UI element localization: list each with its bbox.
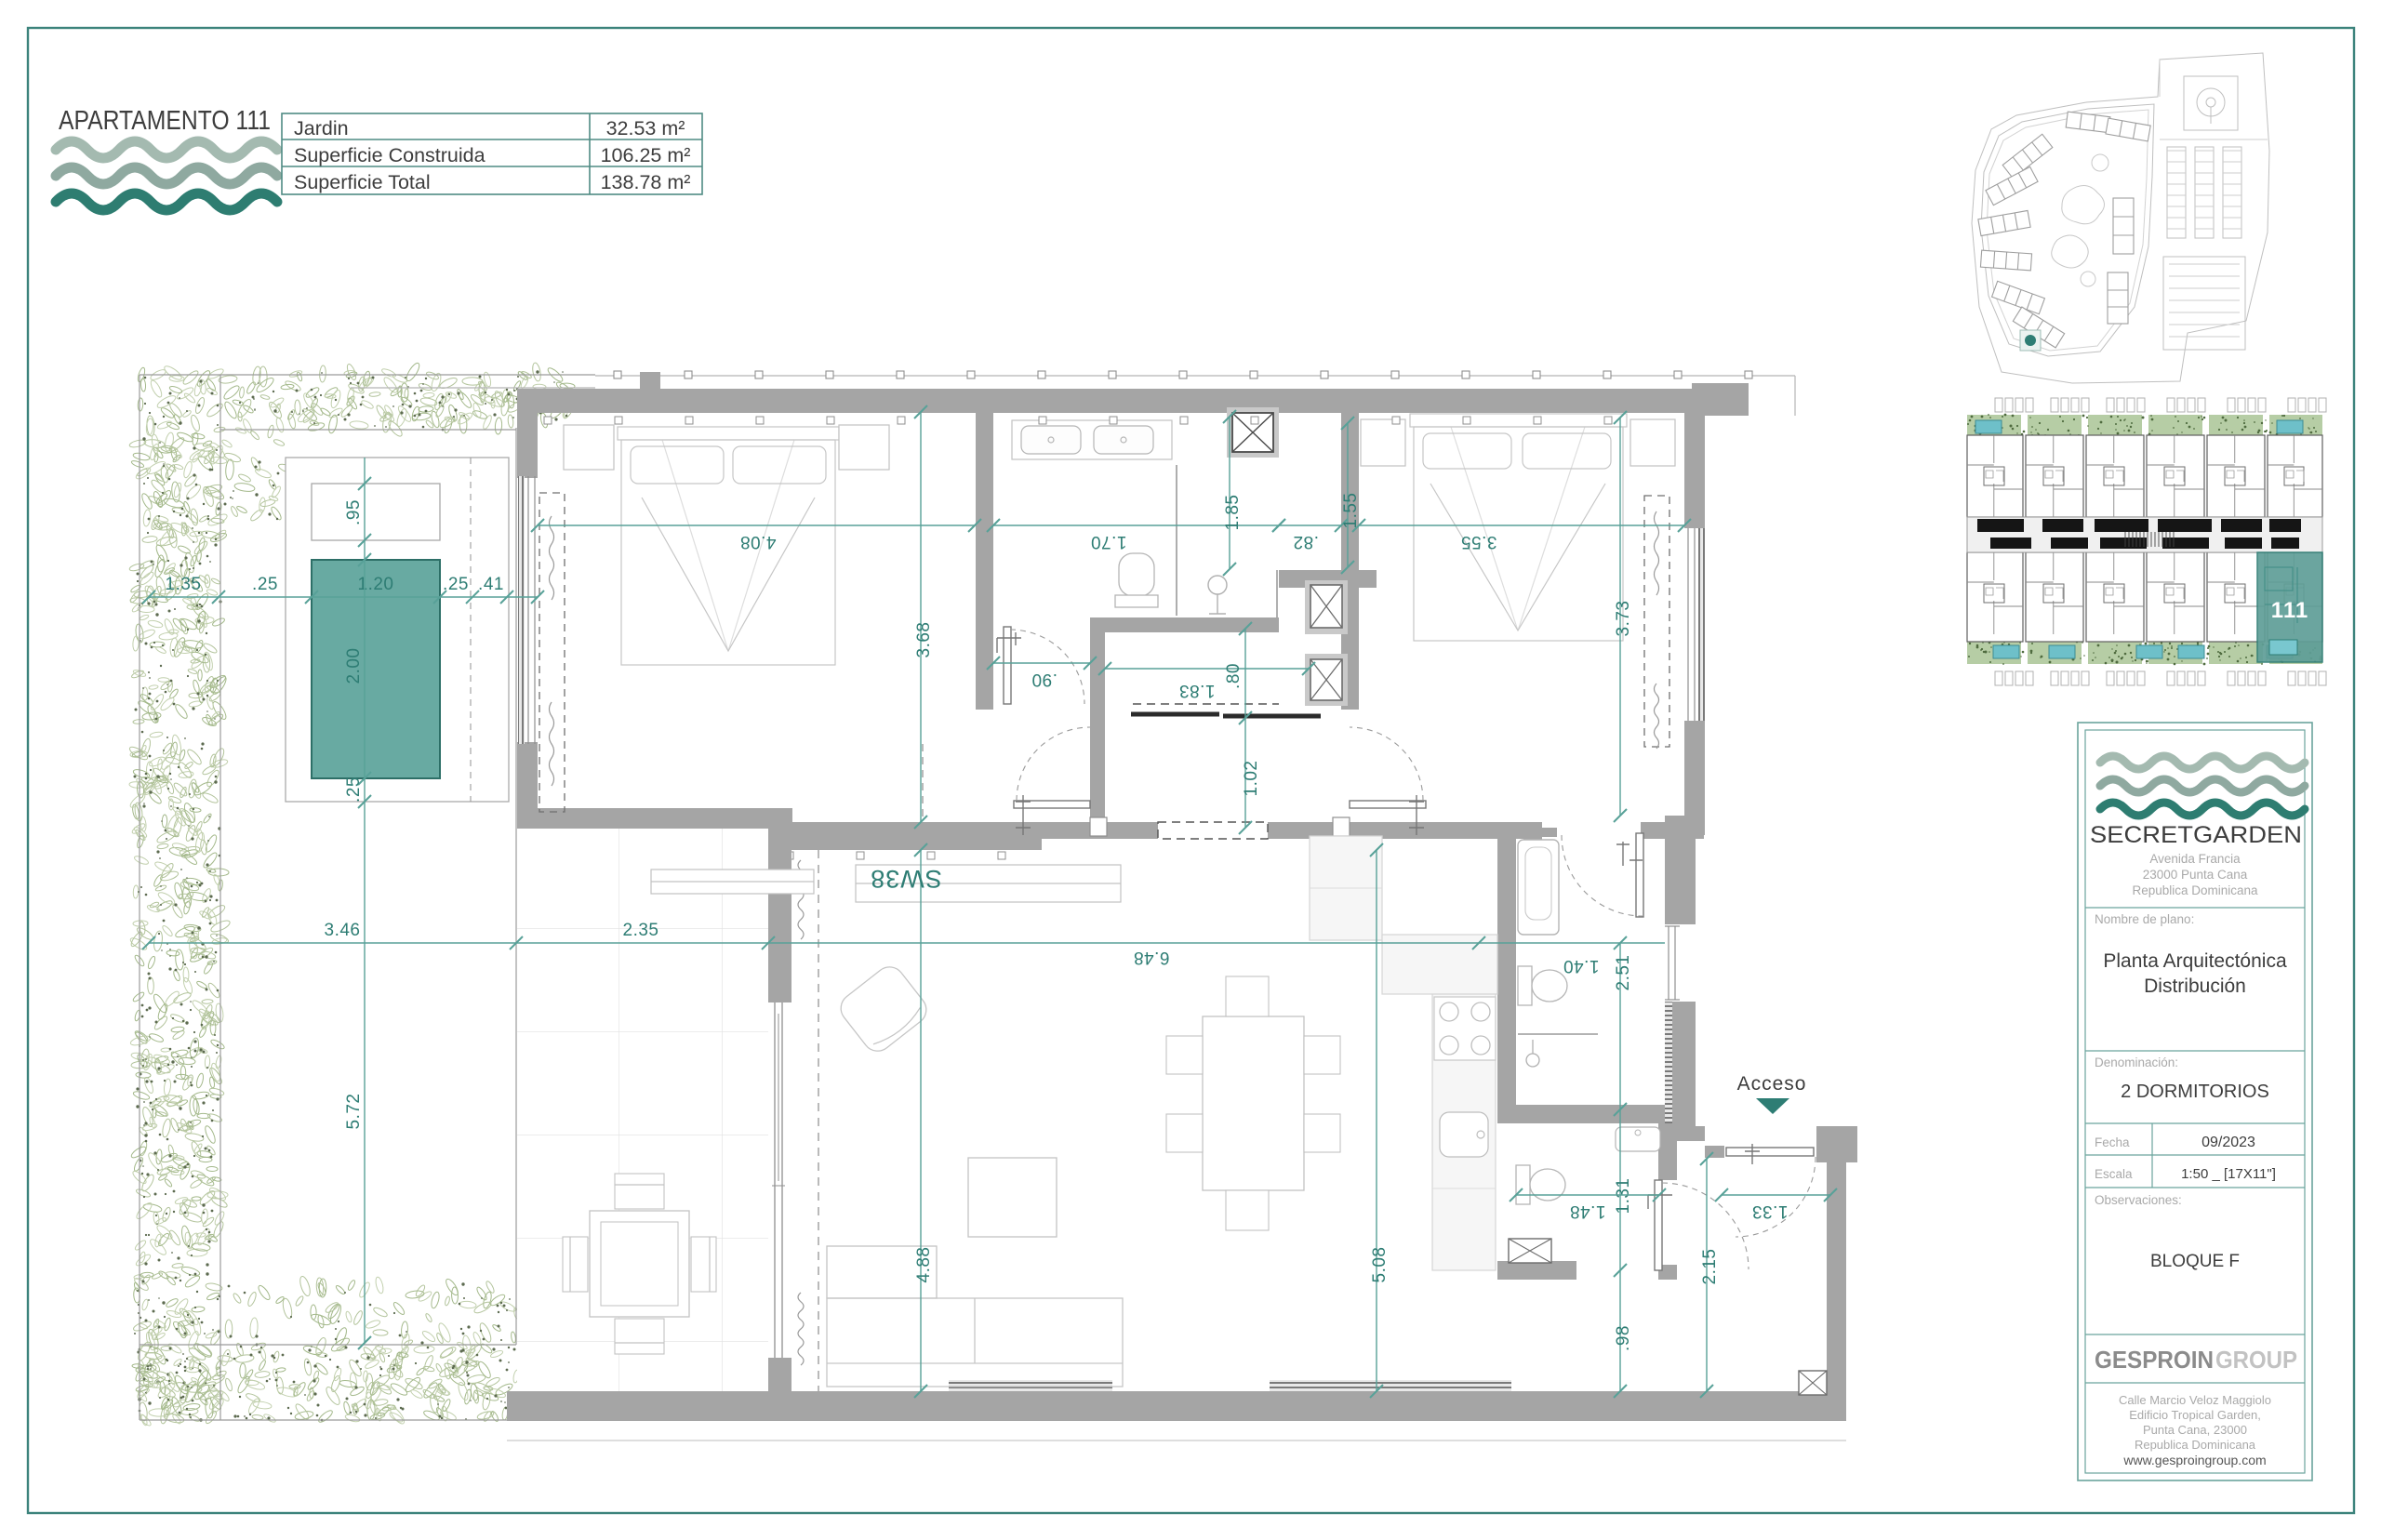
svg-text:Acceso: Acceso <box>1737 1073 1807 1095</box>
svg-text:Nombre de plano:: Nombre de plano: <box>2095 912 2194 926</box>
svg-text:Distribución: Distribución <box>2144 976 2246 997</box>
svg-text:Edificio Tropical Garden,: Edificio Tropical Garden, <box>2129 1408 2261 1422</box>
svg-text:1.70: 1.70 <box>1091 532 1127 551</box>
svg-text:Avenida Francia: Avenida Francia <box>2149 852 2241 866</box>
svg-text:2.35: 2.35 <box>623 921 659 940</box>
svg-text:Fecha: Fecha <box>2095 1135 2130 1149</box>
svg-text:2 DORMITORIOS: 2 DORMITORIOS <box>2121 1082 2269 1102</box>
svg-text:.25: .25 <box>443 575 469 594</box>
svg-text:1.55: 1.55 <box>1341 493 1361 529</box>
svg-text:Escala: Escala <box>2095 1167 2133 1181</box>
svg-text:Observaciones:: Observaciones: <box>2095 1193 2182 1207</box>
svg-text:.80: .80 <box>1224 663 1244 689</box>
svg-text:3.55: 3.55 <box>1461 532 1497 551</box>
svg-text:Denominación:: Denominación: <box>2095 1055 2178 1069</box>
svg-text:APARTAMENTO 111: APARTAMENTO 111 <box>59 106 271 136</box>
svg-text:.82: .82 <box>1293 532 1319 551</box>
svg-text:Republica Dominicana: Republica Dominicana <box>2135 1438 2256 1452</box>
svg-text:.41: .41 <box>478 575 504 594</box>
svg-text:Jardin: Jardin <box>294 117 349 139</box>
svg-text:1:50 _ [17X11"]: 1:50 _ [17X11"] <box>2181 1166 2276 1182</box>
svg-text:1.35: 1.35 <box>166 575 202 594</box>
svg-text:.90: .90 <box>1031 670 1057 689</box>
svg-text:138.78 m²: 138.78 m² <box>601 171 691 193</box>
svg-text:Punta Cana, 23000: Punta Cana, 23000 <box>2143 1423 2247 1437</box>
svg-text:Republica Dominicana: Republica Dominicana <box>2132 883 2258 897</box>
svg-text:SECRETGARDEN: SECRETGARDEN <box>2090 822 2302 848</box>
svg-text:1.20: 1.20 <box>358 575 394 594</box>
svg-text:32.53 m²: 32.53 m² <box>606 117 685 139</box>
svg-text:.25: .25 <box>344 777 364 803</box>
svg-text:5.08: 5.08 <box>1370 1247 1390 1283</box>
svg-text:2.00: 2.00 <box>344 648 364 684</box>
svg-text:5.72: 5.72 <box>344 1094 364 1130</box>
svg-text:Planta Arquitectónica: Planta Arquitectónica <box>2103 950 2287 972</box>
svg-text:2.51: 2.51 <box>1614 955 1633 991</box>
svg-text:.25: .25 <box>252 575 278 594</box>
svg-text:GROUP: GROUP <box>2215 1346 2297 1374</box>
svg-text:BLOQUE F: BLOQUE F <box>2150 1252 2240 1271</box>
svg-text:09/2023: 09/2023 <box>2201 1135 2255 1150</box>
svg-text:2.15: 2.15 <box>1700 1249 1720 1285</box>
svg-text:4.88: 4.88 <box>914 1247 934 1283</box>
svg-text:GESPROIN: GESPROIN <box>2095 1346 2214 1374</box>
svg-text:1.85: 1.85 <box>1223 495 1243 531</box>
svg-text:23000 Punta Cana: 23000 Punta Cana <box>2143 868 2248 882</box>
svg-text:1.33: 1.33 <box>1752 1201 1789 1221</box>
svg-text:SW38: SW38 <box>870 865 942 893</box>
svg-text:www.gesproingroup.com: www.gesproingroup.com <box>2122 1453 2266 1467</box>
svg-text:1.83: 1.83 <box>1179 681 1216 700</box>
svg-text:4.08: 4.08 <box>740 532 777 551</box>
svg-text:1.02: 1.02 <box>1242 761 1261 797</box>
svg-text:Calle Marcio Veloz Maggiolo: Calle Marcio Veloz Maggiolo <box>2119 1393 2271 1407</box>
svg-text:1.48: 1.48 <box>1570 1201 1606 1221</box>
svg-text:3.46: 3.46 <box>325 921 361 940</box>
svg-text:3.68: 3.68 <box>914 622 934 658</box>
svg-text:.95: .95 <box>344 499 364 525</box>
svg-text:6.48: 6.48 <box>1134 948 1170 967</box>
svg-text:Superficie Total: Superficie Total <box>294 171 431 193</box>
svg-text:Superficie Construida: Superficie Construida <box>294 144 486 166</box>
svg-text:106.25 m²: 106.25 m² <box>601 144 691 166</box>
svg-text:3.73: 3.73 <box>1614 601 1633 637</box>
svg-text:1.40: 1.40 <box>1563 956 1600 976</box>
svg-text:1.31: 1.31 <box>1614 1178 1633 1215</box>
svg-text:.98: .98 <box>1614 1325 1633 1351</box>
svg-text:111: 111 <box>2271 598 2308 623</box>
